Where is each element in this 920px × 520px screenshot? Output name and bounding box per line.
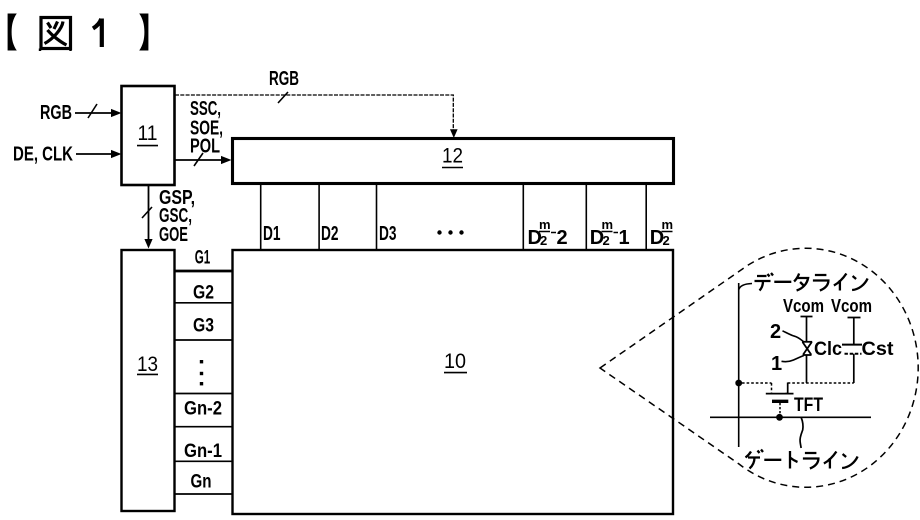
svg-text:Cst: Cst bbox=[862, 339, 895, 360]
svg-text:2: 2 bbox=[770, 321, 781, 343]
svg-text:GOE: GOE bbox=[159, 224, 188, 246]
svg-text:1: 1 bbox=[619, 227, 630, 249]
svg-text:D2: D2 bbox=[321, 223, 339, 245]
svg-text:m: m bbox=[602, 217, 614, 232]
svg-text:1: 1 bbox=[771, 353, 782, 375]
svg-text:2: 2 bbox=[540, 233, 547, 248]
svg-text:2: 2 bbox=[557, 227, 568, 249]
svg-text:13: 13 bbox=[137, 353, 158, 376]
svg-text:D3: D3 bbox=[379, 223, 397, 245]
svg-text:Gn: Gn bbox=[191, 472, 212, 493]
svg-text:Clc: Clc bbox=[814, 339, 842, 360]
svg-text:RGB: RGB bbox=[269, 68, 299, 90]
svg-text:11: 11 bbox=[138, 122, 158, 145]
svg-text:Vcom: Vcom bbox=[831, 296, 872, 316]
svg-text:m: m bbox=[662, 217, 674, 232]
svg-text:2: 2 bbox=[603, 233, 610, 248]
svg-text:Vcom: Vcom bbox=[783, 296, 824, 316]
svg-text:DE, CLK: DE, CLK bbox=[13, 144, 73, 166]
svg-text:G2: G2 bbox=[193, 283, 214, 304]
svg-text:Gn-1: Gn-1 bbox=[184, 441, 222, 462]
svg-text:TFT: TFT bbox=[794, 395, 823, 416]
svg-text:12: 12 bbox=[442, 145, 463, 168]
svg-text:RGB: RGB bbox=[40, 102, 72, 124]
svg-text:POL: POL bbox=[190, 136, 220, 158]
svg-text:Gn-2: Gn-2 bbox=[184, 399, 222, 420]
svg-text:10: 10 bbox=[444, 350, 466, 373]
svg-text:D1: D1 bbox=[263, 223, 281, 245]
svg-text:2: 2 bbox=[663, 233, 670, 248]
svg-text:G3: G3 bbox=[193, 316, 214, 337]
svg-text:m: m bbox=[539, 217, 551, 232]
svg-text:G1: G1 bbox=[195, 248, 211, 269]
